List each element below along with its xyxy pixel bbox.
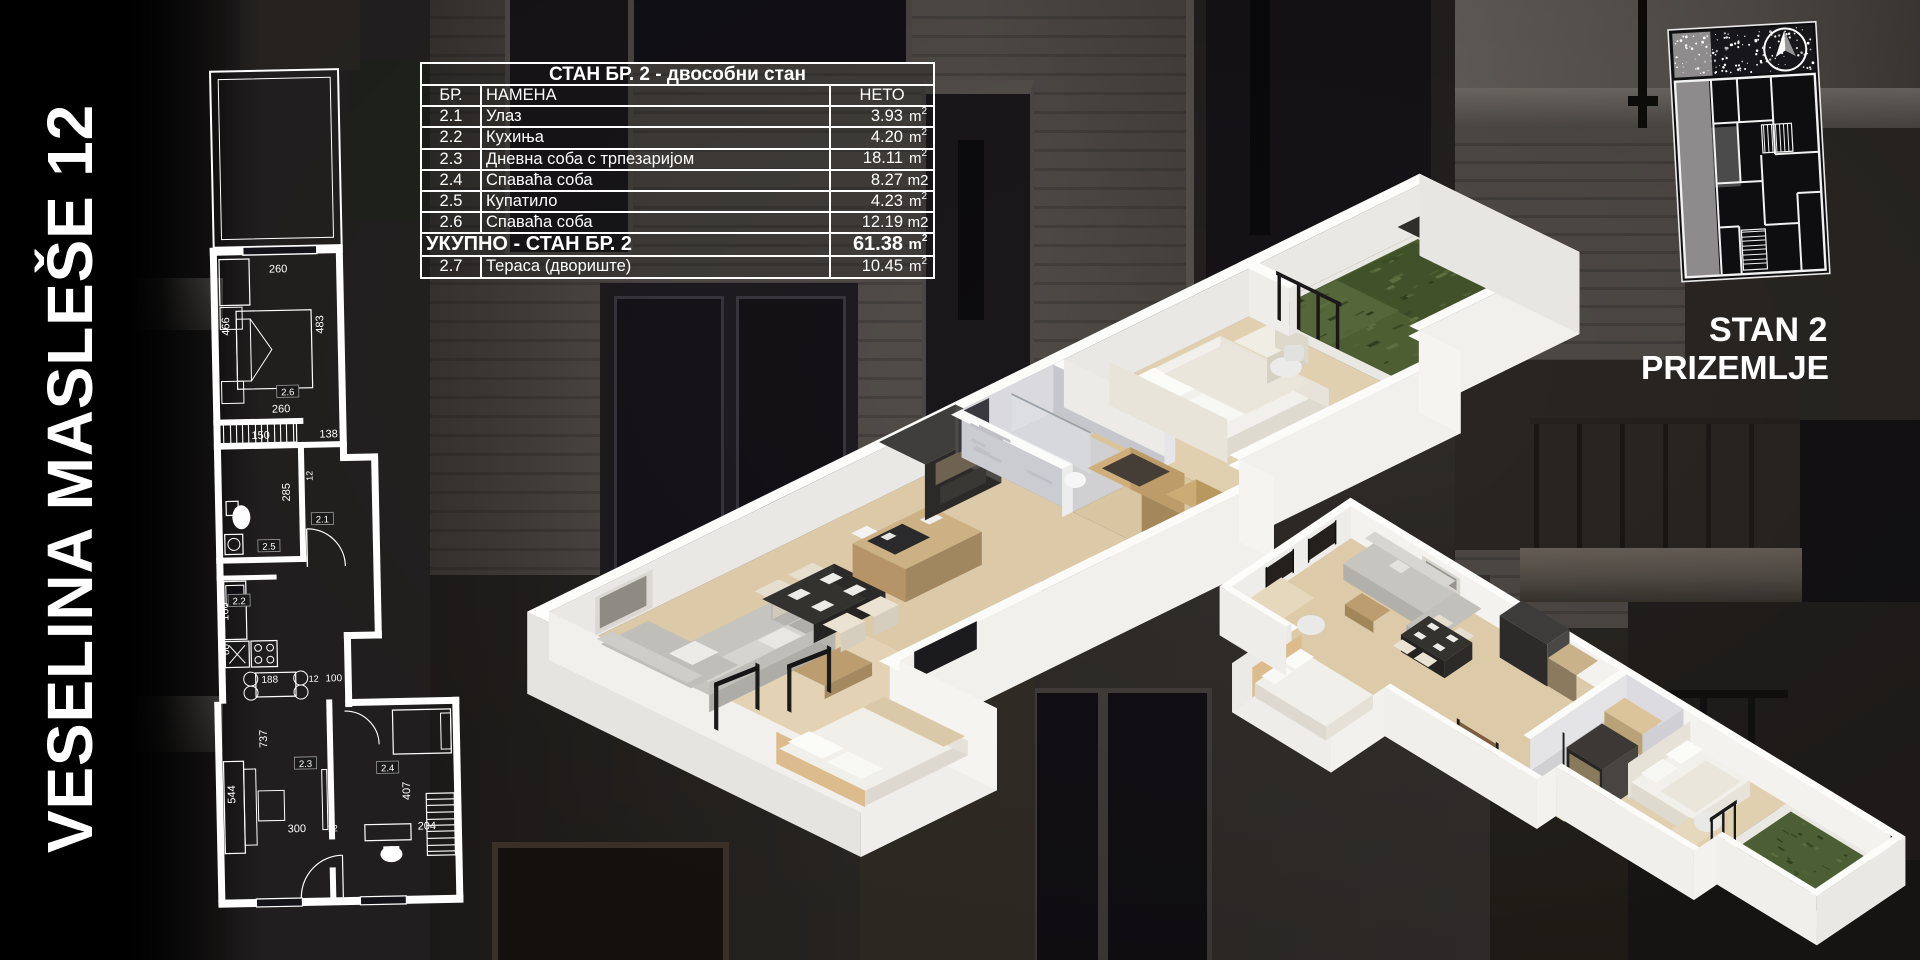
svg-text:2.6: 2.6 [281, 387, 294, 398]
svg-text:483: 483 [314, 315, 326, 334]
svg-text:150: 150 [251, 430, 270, 442]
svg-text:260: 260 [272, 403, 291, 415]
svg-text:2.1: 2.1 [316, 514, 329, 525]
svg-text:60: 60 [221, 643, 232, 655]
svg-text:737: 737 [258, 730, 270, 749]
svg-text:188: 188 [261, 674, 278, 685]
svg-text:12: 12 [304, 471, 314, 481]
svg-text:544: 544 [226, 785, 238, 804]
svg-text:2.3: 2.3 [299, 759, 312, 770]
svg-text:100: 100 [325, 673, 342, 684]
svg-text:138: 138 [319, 428, 338, 440]
svg-text:300: 300 [288, 823, 307, 835]
svg-text:466: 466 [220, 317, 232, 336]
svg-text:204: 204 [418, 820, 437, 832]
svg-text:285: 285 [281, 483, 293, 502]
svg-text:12: 12 [328, 823, 338, 833]
svg-text:2.2: 2.2 [232, 596, 245, 607]
svg-text:260: 260 [269, 263, 288, 275]
svg-text:12: 12 [309, 674, 319, 684]
svg-text:2.5: 2.5 [262, 542, 275, 553]
svg-text:407: 407 [401, 782, 413, 801]
svg-text:2.4: 2.4 [381, 763, 394, 774]
